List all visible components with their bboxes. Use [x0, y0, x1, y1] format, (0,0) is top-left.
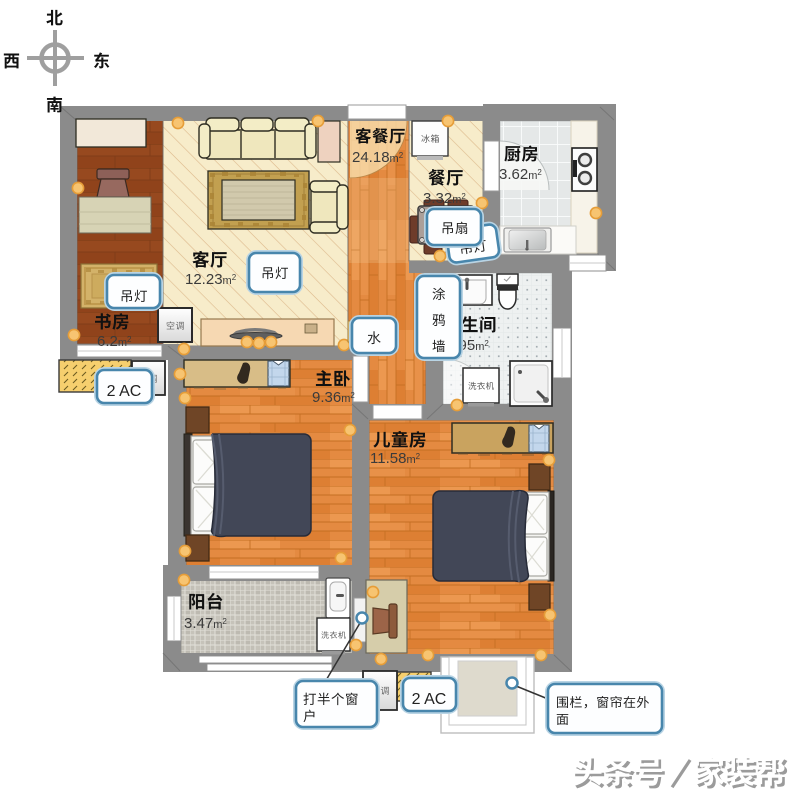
svg-text:2 AC: 2 AC: [107, 383, 142, 400]
svg-text:6.2m2: 6.2m2: [97, 333, 132, 350]
svg-text:2 AC: 2 AC: [412, 691, 447, 708]
